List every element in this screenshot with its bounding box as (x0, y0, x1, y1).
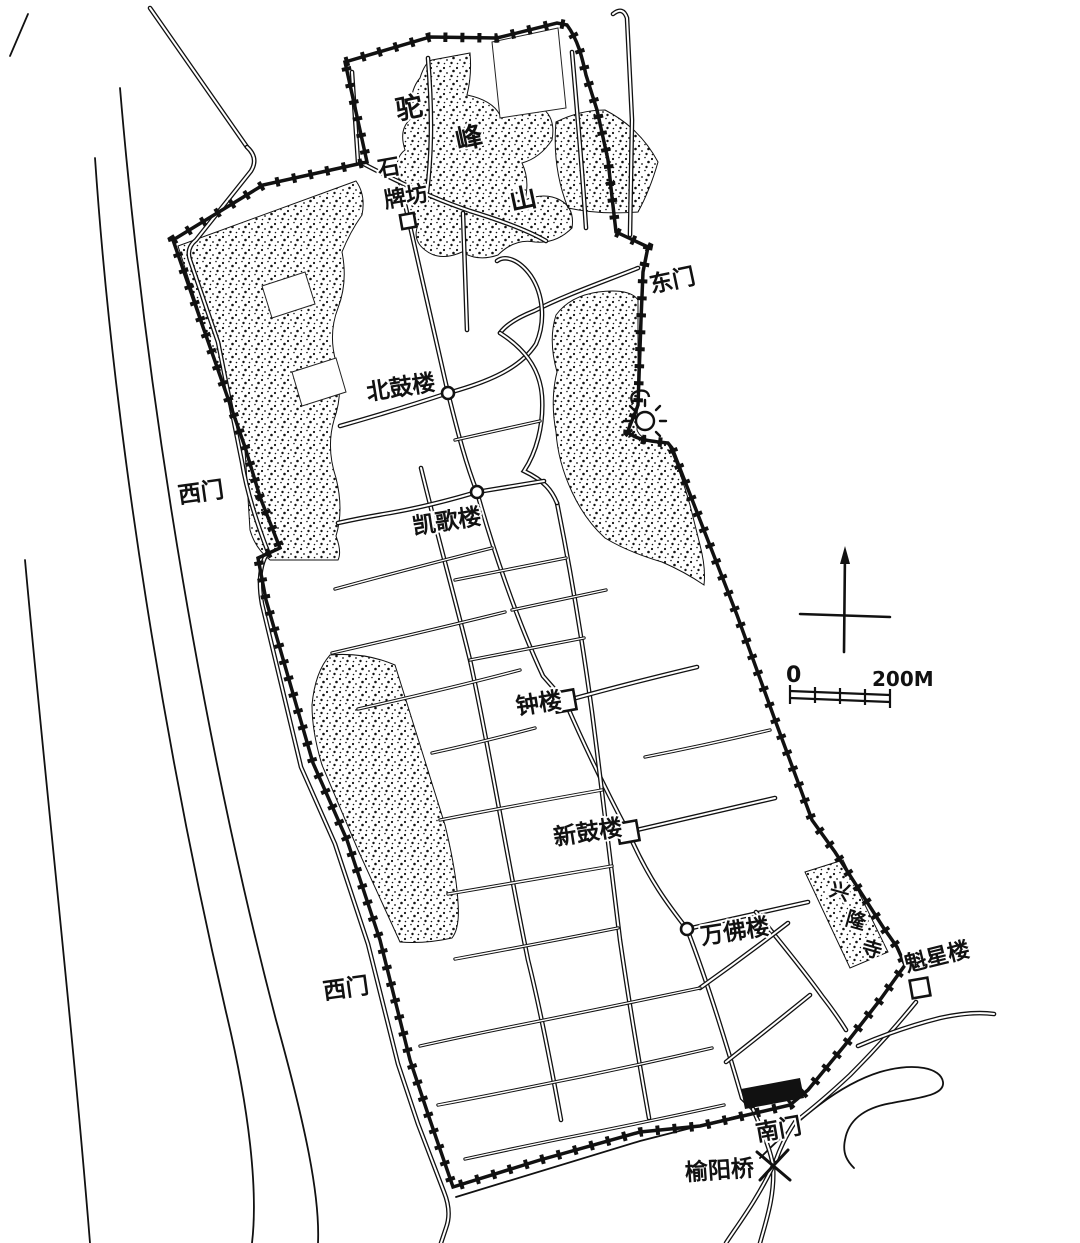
open-block (492, 28, 566, 118)
scale-zero-label: 0 (786, 663, 801, 688)
marker-wanfolou (681, 923, 693, 935)
city-map-drawing: 0 200M 驼峰山石牌坊东门北鼓楼西门凯歌楼钟楼新鼓楼万佛楼兴隆寺魁星楼西门南… (0, 0, 1080, 1243)
scale-end-label: 200M (872, 667, 934, 691)
label-shipaifang-line-1: 石 (375, 154, 402, 183)
marker-beigulou (442, 387, 454, 399)
marker-kaigelou (471, 486, 483, 498)
map-canvas: 0 200M 驼峰山石牌坊东门北鼓楼西门凯歌楼钟楼新鼓楼万佛楼兴隆寺魁星楼西门南… (0, 0, 1080, 1243)
marker-kuixinglou (910, 978, 931, 999)
paper-background (0, 0, 1080, 1243)
label-yuyangqiao: 榆阳桥 (684, 1155, 756, 1187)
marker-shipaifang (400, 213, 416, 229)
